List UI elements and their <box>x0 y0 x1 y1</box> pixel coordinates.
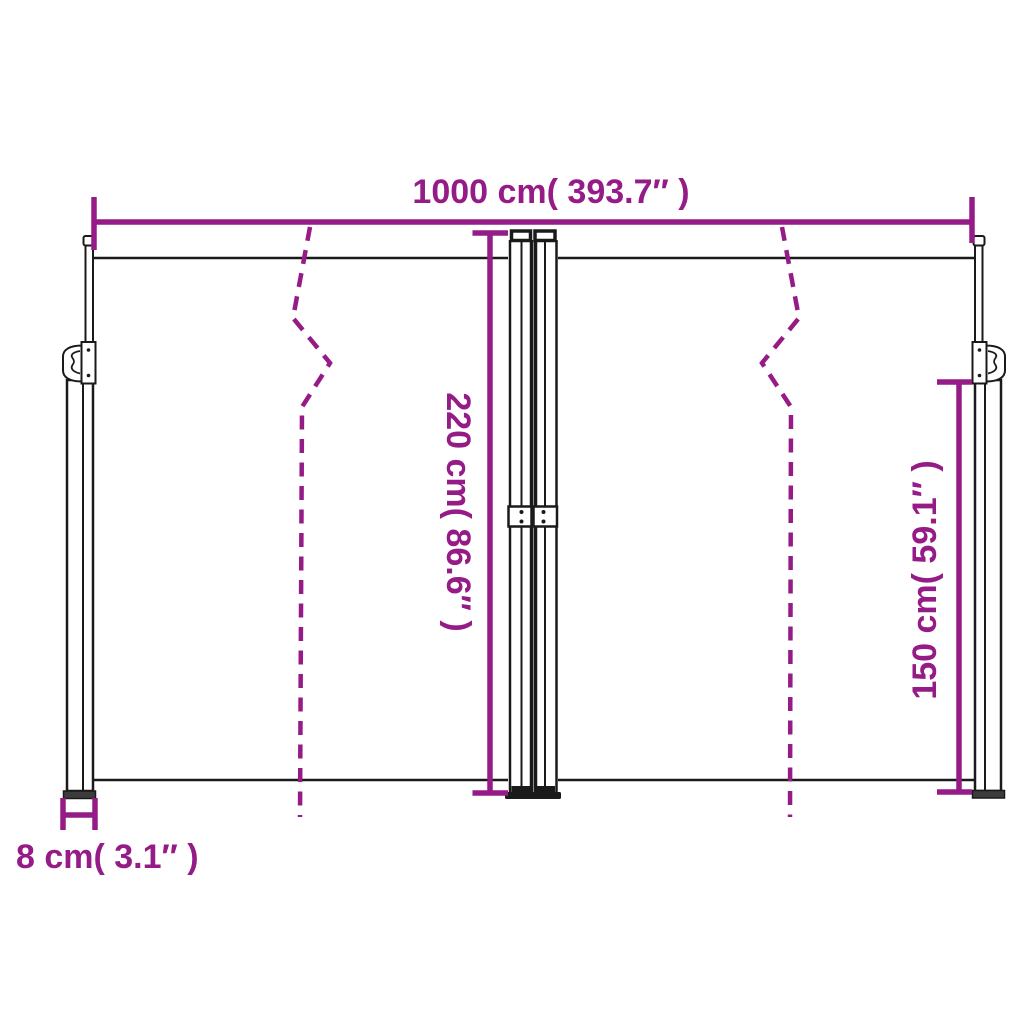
handle-screw <box>87 374 91 378</box>
pole-width-dimension-label: 8 cm( 3.1″ ) <box>16 838 199 876</box>
dimension-side-height: 150 cm( 59.1″ ) <box>906 382 972 792</box>
cassette-top-cap-left <box>512 231 531 241</box>
left-pole-lower <box>67 380 93 791</box>
left-pole-foot <box>64 791 96 799</box>
cassette-mid-bracket-left <box>509 507 532 527</box>
cassette-foot <box>505 792 561 799</box>
width-dimension-label: 1000 cm( 393.7″ ) <box>412 173 689 211</box>
handle-screw <box>978 348 982 352</box>
right-pole <box>973 236 1006 798</box>
left-pole-upper <box>86 245 94 344</box>
right-pole-foot <box>973 791 1005 799</box>
bracket-screw <box>520 510 524 514</box>
cassette-mid-bracket-right <box>534 507 558 527</box>
dimension-annotations: 1000 cm( 393.7″ ) 220 cm( 86.6″ ) 150 cm… <box>16 173 972 876</box>
extension-dashed-line-right <box>762 227 799 817</box>
retractable-side-awning-drawing: 1000 cm( 393.7″ ) 220 cm( 86.6″ ) 150 cm… <box>0 0 1024 1024</box>
dimension-pole-width: 8 cm( 3.1″ ) <box>16 798 199 876</box>
cassette-top-cap-right <box>535 231 555 241</box>
right-pole-top-cap <box>974 236 985 246</box>
left-pole <box>63 236 96 799</box>
bracket-screw <box>520 520 524 524</box>
bracket-screw <box>542 520 546 524</box>
height-dimension-label: 220 cm( 86.6″ ) <box>439 392 477 631</box>
dimension-height: 220 cm( 86.6″ ) <box>439 233 508 793</box>
handle-screw <box>978 374 982 378</box>
awning-body <box>63 231 1005 799</box>
product-dimension-diagram: 1000 cm( 393.7″ ) 220 cm( 86.6″ ) 150 cm… <box>0 0 1024 1024</box>
dimension-width: 1000 cm( 393.7″ ) <box>94 173 972 250</box>
center-cassette <box>505 231 561 799</box>
right-pole-lower <box>975 380 1001 791</box>
right-pole-upper <box>975 245 983 344</box>
handle-screw <box>87 348 91 352</box>
side-height-dimension-label: 150 cm( 59.1″ ) <box>906 460 944 699</box>
extension-dashed-line-left <box>293 227 330 817</box>
bracket-screw <box>542 510 546 514</box>
